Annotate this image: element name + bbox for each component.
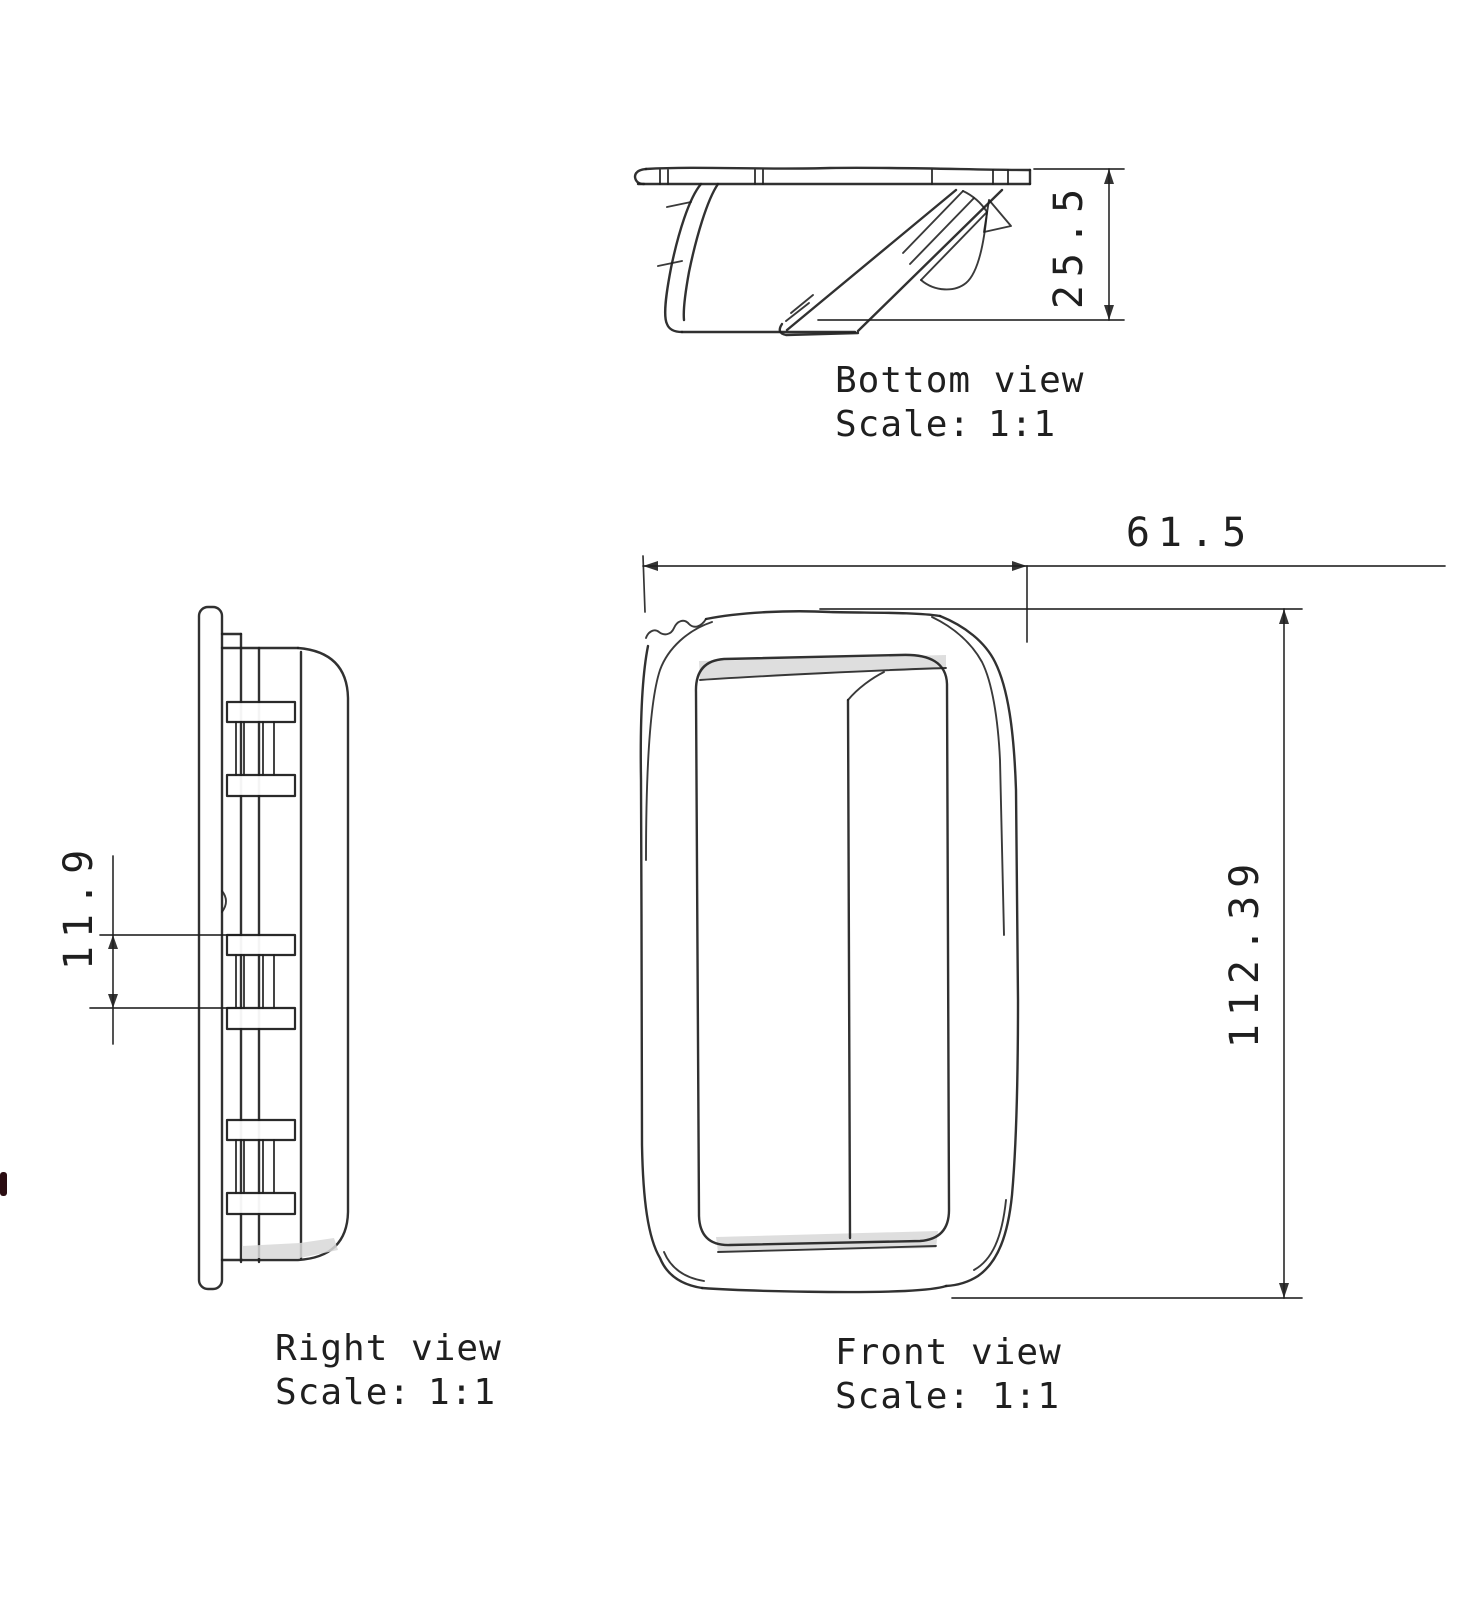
ext-line-left — [643, 556, 645, 612]
bottom-view: 25.5 Bottom view Scale: 1:1 — [635, 168, 1124, 445]
right-view-scale-label: Scale: — [275, 1372, 411, 1413]
dim-width-value: 61.5 — [1126, 510, 1254, 556]
outline-left-inner — [646, 622, 712, 860]
front-view-scale-label: Scale: — [835, 1376, 971, 1417]
right-view-title: Right view — [275, 1328, 502, 1369]
front-view-geometry — [641, 611, 1018, 1292]
dim-pitch-value: 11.9 — [56, 842, 102, 970]
flange-left-cap — [635, 169, 646, 184]
right-view: 11.9 Right view Scale: 1:1 — [56, 607, 502, 1413]
clip-1 — [227, 702, 295, 796]
right-view-scale-value: 1:1 — [428, 1372, 496, 1413]
grip-divider — [848, 700, 850, 1238]
arrow-down — [1104, 305, 1114, 320]
outline-bottom-left-inner — [664, 1252, 704, 1281]
pocket-outline — [696, 655, 949, 1245]
clip-3-bottom-bar — [227, 1193, 295, 1214]
arrow-right — [1012, 561, 1027, 571]
clip-1-bottom-bar — [227, 775, 295, 796]
front-view: 61.5 112.39 Front view Scale: 1:1 — [641, 510, 1445, 1417]
grip-top-bevel — [848, 672, 884, 700]
dim-depth-value: 25.5 — [1046, 181, 1092, 309]
clip-2-top-bar — [227, 935, 295, 955]
bottom-view-scale-label: Scale: — [835, 404, 971, 445]
latch-line-3 — [921, 212, 987, 280]
bottom-view-geometry — [635, 168, 1030, 335]
dimension-height: 112.39 — [820, 609, 1302, 1298]
clip-2-bottom-bar — [227, 1008, 295, 1029]
clip-3-top-bar — [227, 1120, 295, 1140]
outline-right-edge — [940, 616, 1018, 1286]
front-view-title: Front view — [835, 1332, 1062, 1373]
latch-line-1 — [903, 191, 963, 253]
arrow-down — [1279, 1283, 1289, 1298]
stray-mark — [0, 1172, 7, 1196]
dim-height-value: 112.39 — [1222, 856, 1268, 1049]
flange-top-edge — [646, 168, 1030, 170]
arrow-down — [108, 994, 118, 1008]
flange-ticks — [660, 170, 1008, 184]
arrow-left — [643, 561, 658, 571]
latch-line-2 — [910, 198, 974, 264]
clip-2 — [227, 935, 295, 1029]
bottom-view-title: Bottom view — [835, 360, 1084, 401]
clip-3 — [227, 1120, 295, 1214]
latch-triangle — [984, 200, 1011, 232]
band-ticks — [786, 295, 813, 321]
front-view-scale-value: 1:1 — [992, 1376, 1060, 1417]
arrow-up — [108, 935, 118, 949]
outline-bottom-edge — [702, 1286, 946, 1292]
bottom-view-scale-value: 1:1 — [988, 404, 1056, 445]
drawing-canvas: 25.5 Bottom view Scale: 1:1 — [0, 0, 1472, 1616]
drawing-sheet: 25.5 Bottom view Scale: 1:1 — [0, 0, 1472, 1616]
dimension-width: 61.5 — [643, 510, 1445, 642]
outline-top-edge — [706, 611, 940, 619]
arrow-up — [1104, 169, 1114, 184]
right-view-geometry — [199, 607, 348, 1289]
clip-1-top-bar — [227, 702, 295, 722]
dimension-pitch: 11.9 — [56, 842, 240, 1044]
dimension-depth: 25.5 — [818, 169, 1124, 320]
outline-bottom-right-inner — [974, 1200, 1006, 1270]
arrow-up — [1279, 609, 1289, 624]
plate — [199, 607, 222, 1289]
